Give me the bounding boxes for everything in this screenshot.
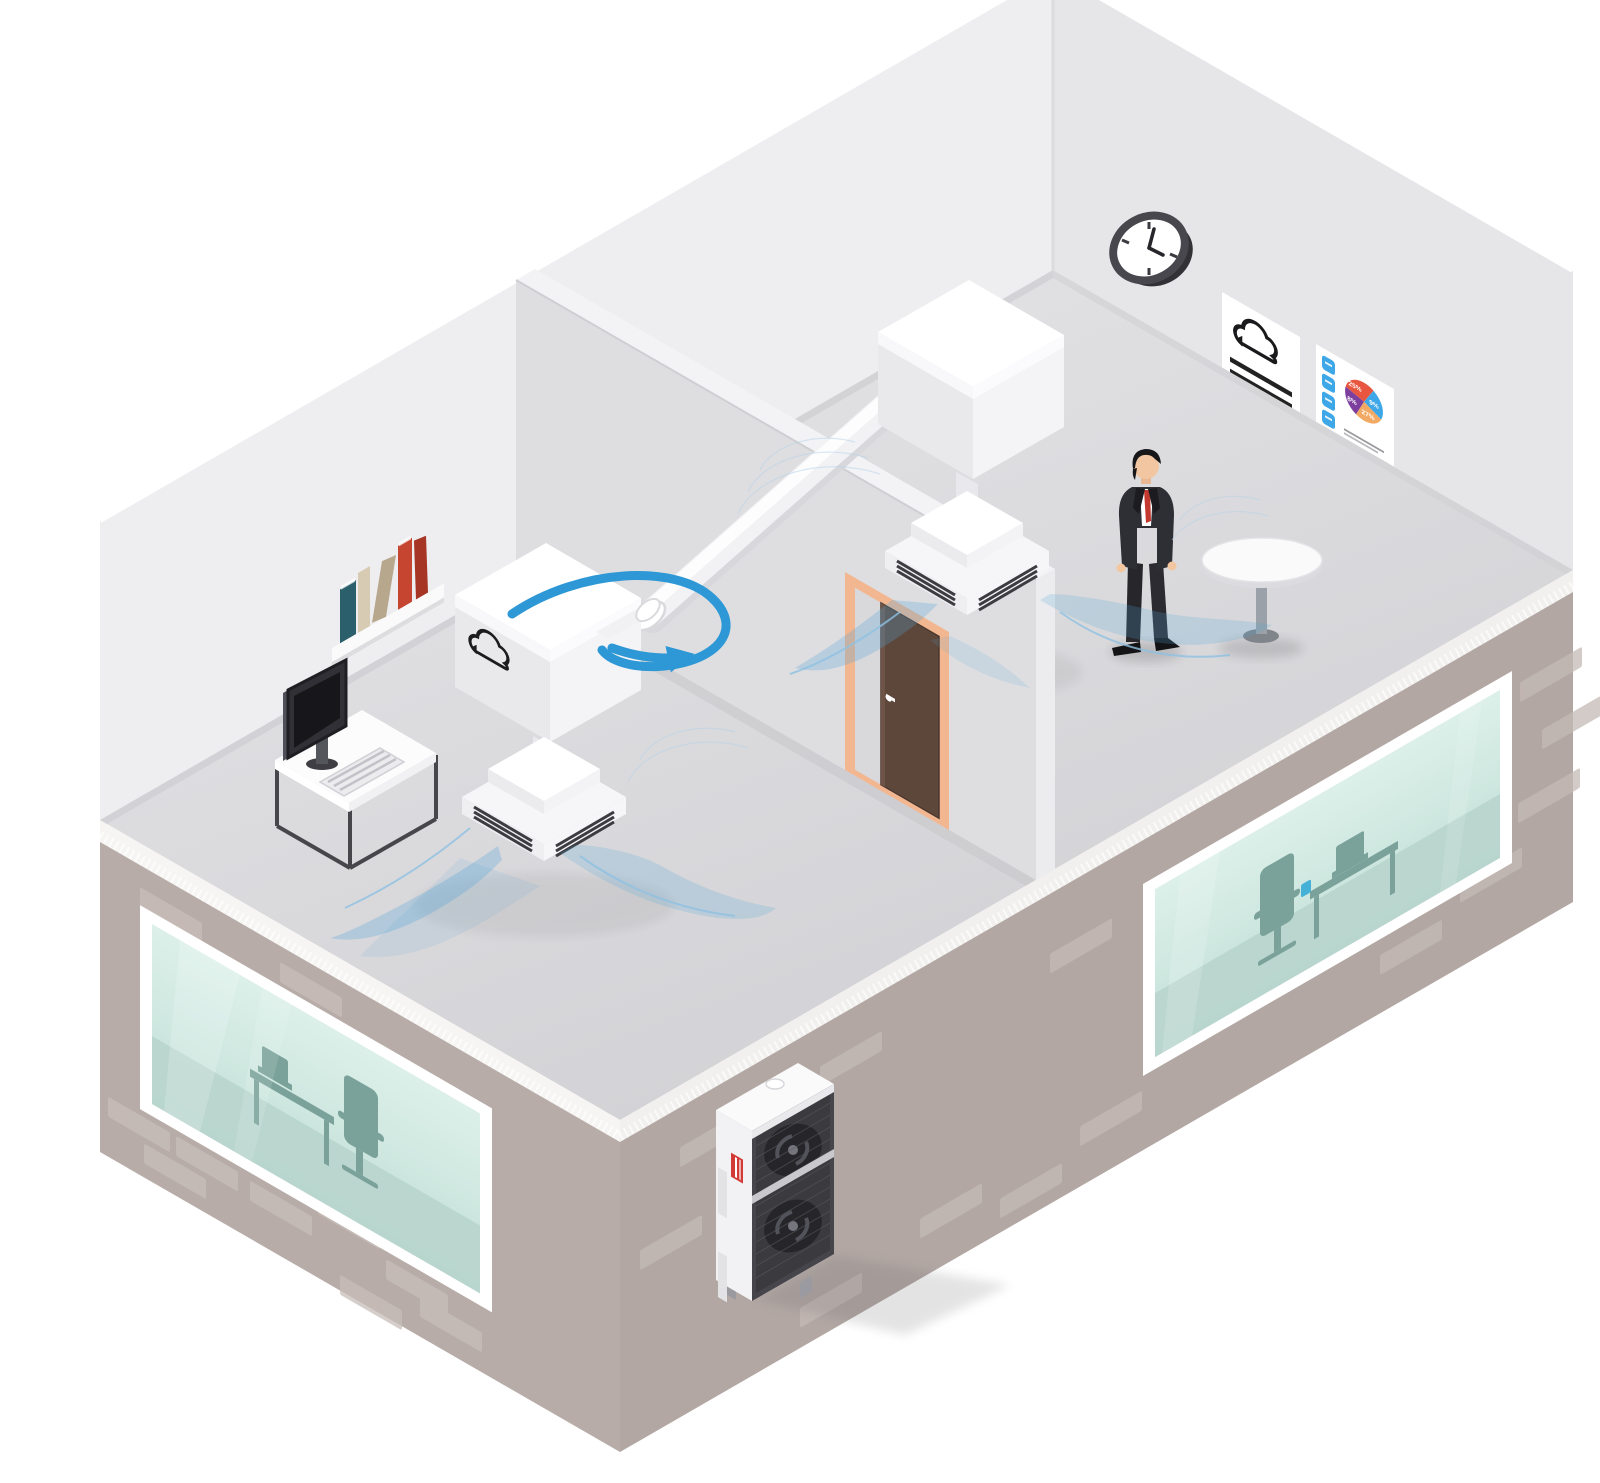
partition-end (1036, 569, 1055, 880)
book (340, 580, 356, 643)
isometric-scene: 25% 9% 27% 8% (0, 0, 1600, 1483)
top-cap (766, 1079, 784, 1089)
book (414, 533, 428, 601)
man-hand (1117, 564, 1126, 573)
man-hand (1168, 562, 1177, 571)
table-top (1202, 538, 1322, 582)
book (358, 566, 370, 633)
illustration-canvas: 25% 9% 27% 8% (0, 0, 1600, 1483)
book (398, 538, 412, 610)
